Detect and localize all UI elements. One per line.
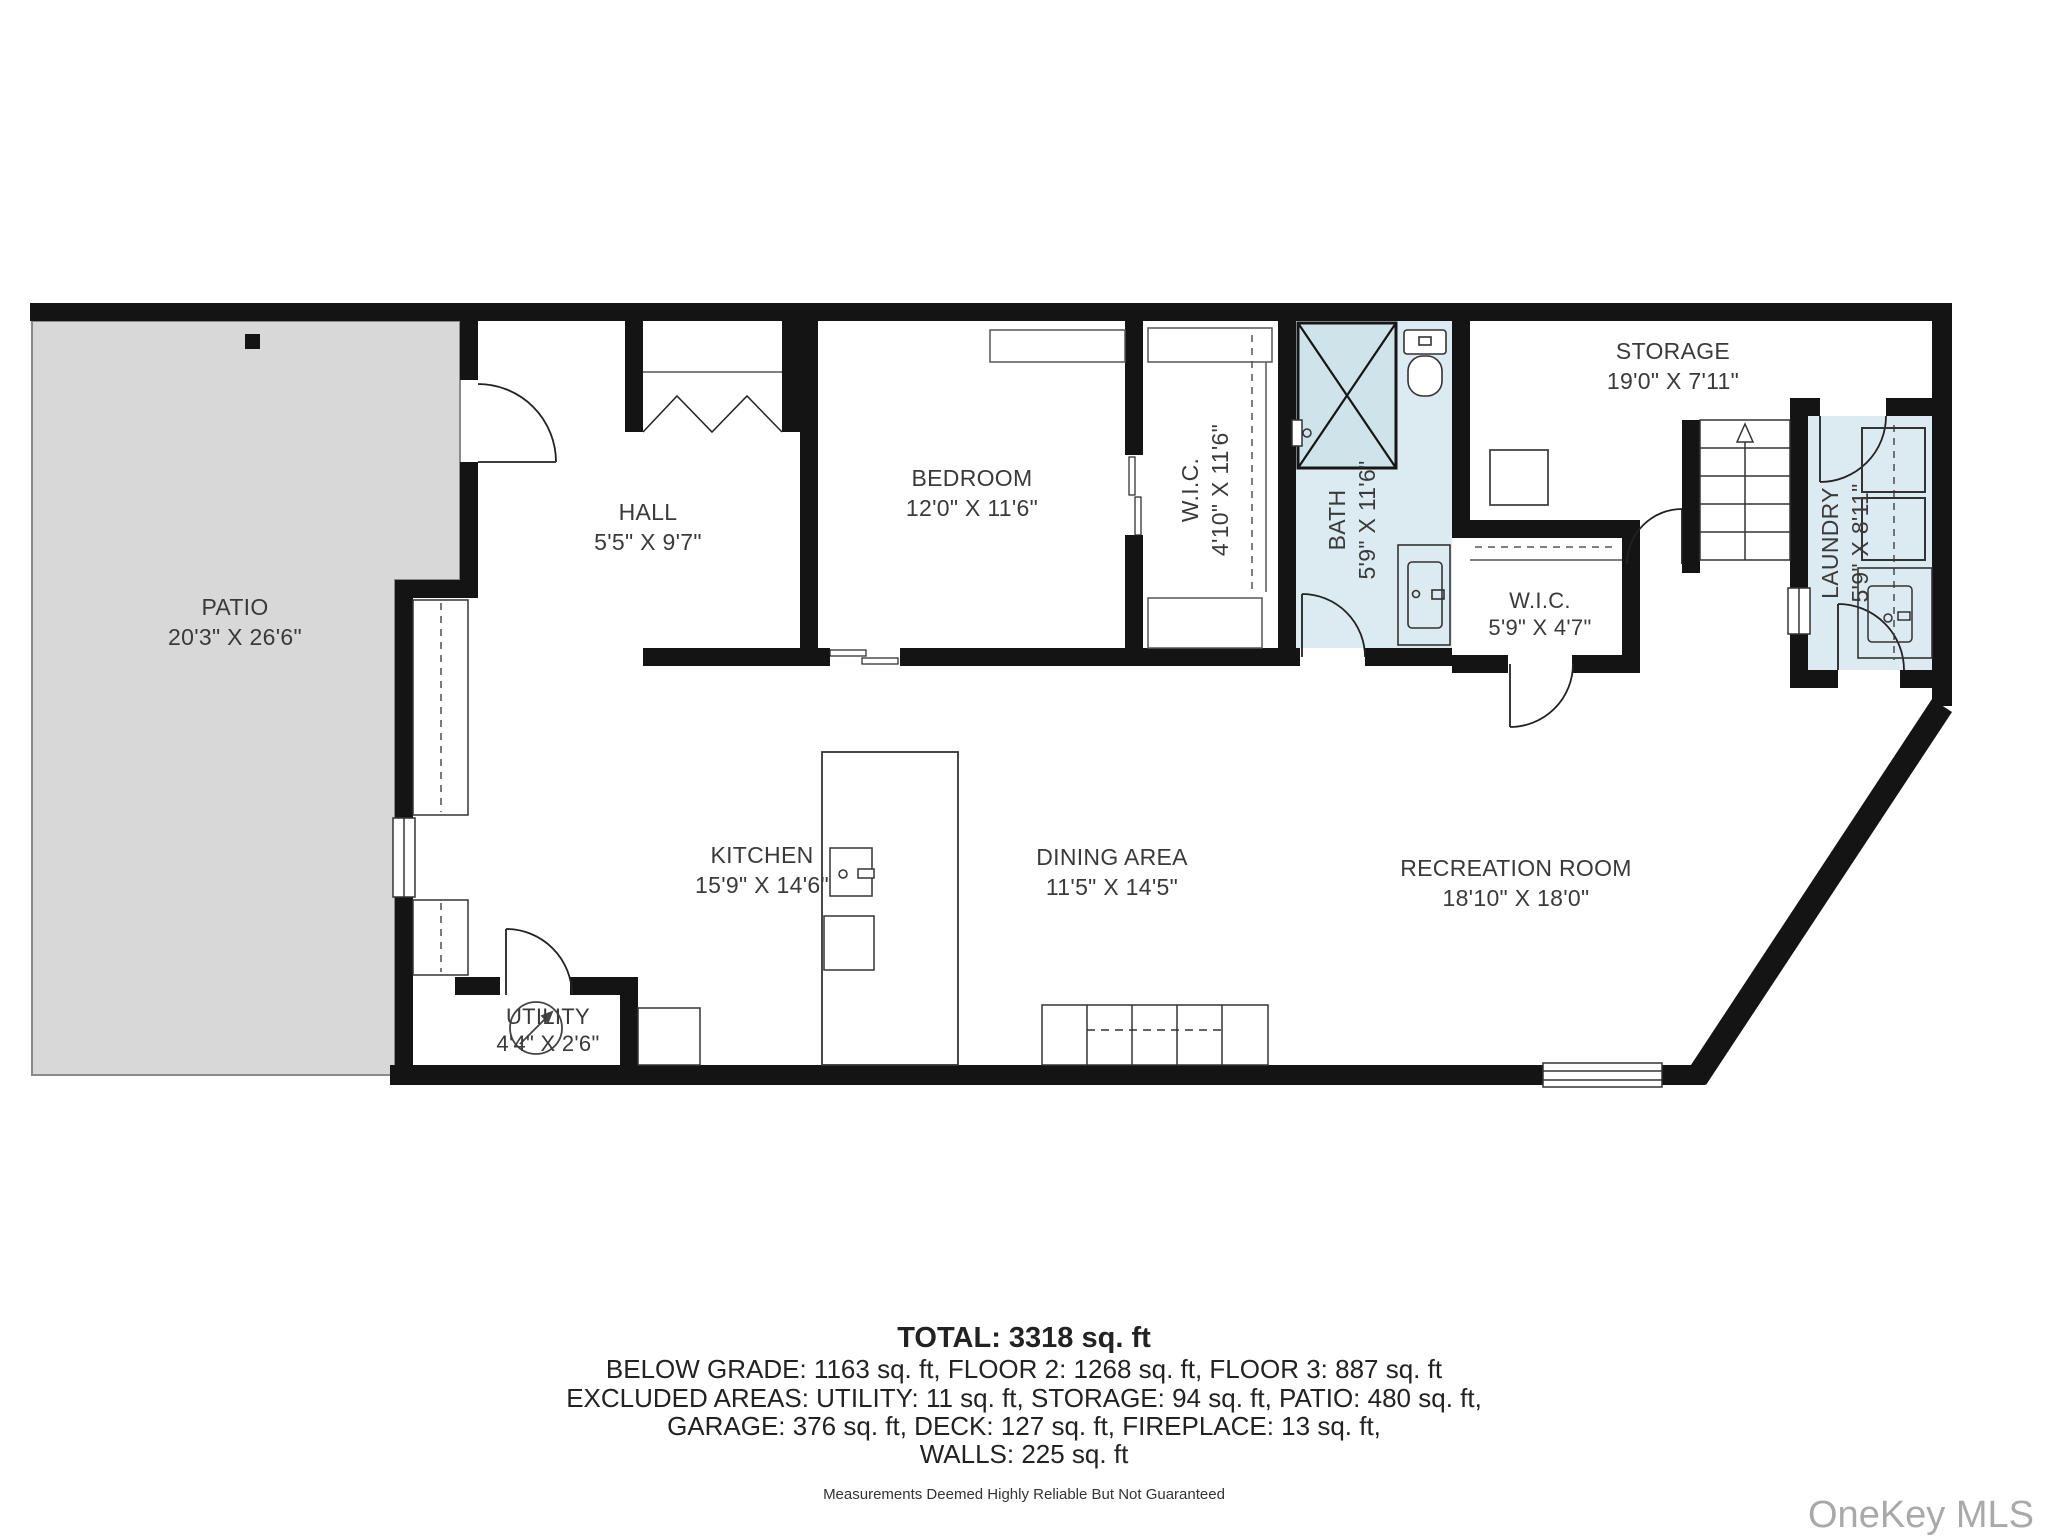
summary-disclaimer: Measurements Deemed Highly Reliable But … xyxy=(0,1486,2048,1503)
diagonal-wall xyxy=(1687,699,1952,1085)
dining-credenza xyxy=(1042,1005,1268,1065)
floor-plan-svg xyxy=(0,0,2048,1536)
island-cabinet xyxy=(824,916,874,970)
wic2-door-arc xyxy=(1510,664,1573,727)
patio-door-arc xyxy=(478,384,556,462)
kitchen-counter-lower xyxy=(413,900,468,975)
laundry-area xyxy=(1808,416,1932,670)
stairs xyxy=(1700,420,1790,560)
summary-total: TOTAL: 3318 sq. ft xyxy=(0,1322,2048,1355)
utility-heater xyxy=(510,1002,562,1054)
summary-excluded: EXCLUDED AREAS: UTILITY: 11 sq. ft, STOR… xyxy=(0,1383,2048,1414)
summary-walls: WALLS: 225 sq. ft xyxy=(0,1439,2048,1470)
utility-side-counter xyxy=(638,1008,700,1065)
summary-floors: BELOW GRADE: 1163 sq. ft, FLOOR 2: 1268 … xyxy=(0,1354,2048,1385)
stairs-up-arrow xyxy=(1737,424,1753,442)
summary-garage: GARAGE: 376 sq. ft, DECK: 127 sq. ft, FI… xyxy=(0,1411,2048,1442)
storage-unit xyxy=(1490,450,1548,505)
kitchen-island xyxy=(822,752,958,1065)
toilet xyxy=(1404,330,1446,396)
bedroom-sliding-door xyxy=(830,650,898,664)
hall-closet-bifold xyxy=(643,396,782,432)
kitchen-fixtures xyxy=(413,600,958,1065)
rec-room-window xyxy=(1543,1063,1662,1087)
floor-plan-page: PATIO20'3" X 26'6" HALL5'5" X 9'7" BEDRO… xyxy=(0,0,2048,1536)
watermark: OneKey MLS xyxy=(1808,1494,2034,1536)
patio-post xyxy=(245,334,260,349)
wic-pocket-door xyxy=(1129,457,1141,535)
utility-door-arc xyxy=(506,929,572,995)
shower-valve xyxy=(1292,420,1302,446)
